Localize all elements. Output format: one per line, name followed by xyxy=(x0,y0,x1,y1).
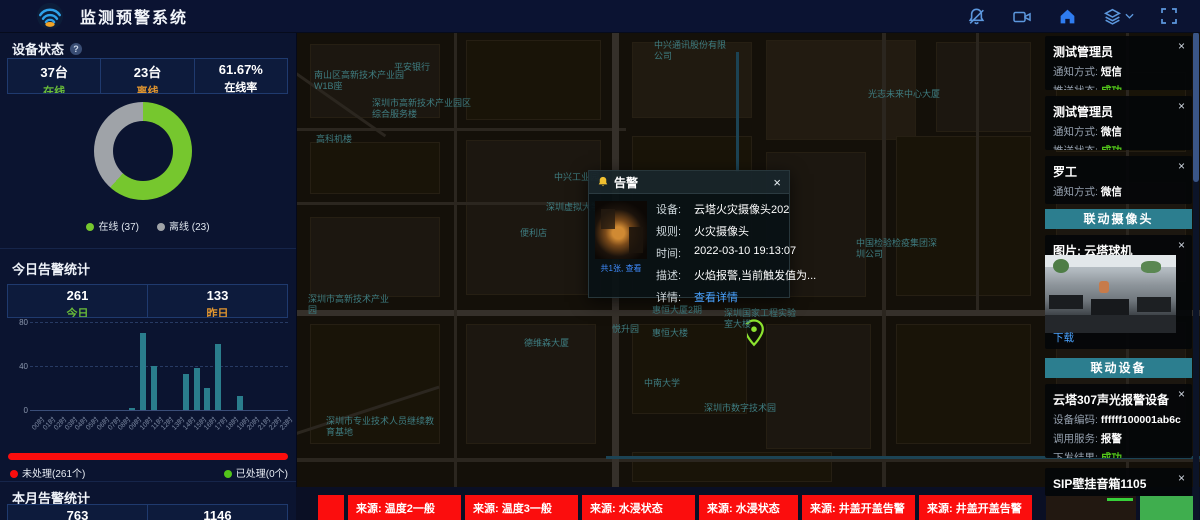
device-card-title: 云塔307声光报警设备 xyxy=(1053,391,1184,408)
device-row: 设备编码:ffffff100001ab6c xyxy=(1053,412,1184,427)
map-block xyxy=(466,40,601,120)
notification-row: 推送状态:成功 xyxy=(1053,203,1184,204)
photo-region xyxy=(1141,261,1161,273)
event-snapshot-thumbnail[interactable] xyxy=(1046,496,1136,520)
y-axis-tick: 40 xyxy=(4,362,28,371)
bar xyxy=(140,333,146,410)
alarm-popup-header: 告警 × xyxy=(589,171,789,194)
map-road xyxy=(976,32,979,310)
notification-row: 推送状态:成功 xyxy=(1053,143,1184,150)
bar xyxy=(151,366,157,410)
notification-row: 推送状态:成功 xyxy=(1053,83,1184,90)
left-stats-panel: 设备状态 ? 37台在线23台离线61.67%在线率 在线 (37)离线 (23… xyxy=(0,32,297,520)
field-label: 时间: xyxy=(656,245,688,261)
photo-region xyxy=(1091,299,1129,315)
close-icon[interactable]: × xyxy=(1178,239,1185,251)
map-label: 中南大学 xyxy=(644,378,699,389)
legend-label: 未处理(261个) xyxy=(22,469,85,480)
stat-cell: 61.67%在线率 xyxy=(194,59,287,93)
osd-text-strip xyxy=(1107,498,1133,501)
legend-label: 已处理(0个) xyxy=(236,469,288,480)
field-value: 云塔火灾摄像头202 xyxy=(694,201,789,217)
map-block xyxy=(466,140,601,295)
alert-source-block[interactable]: 来源: 井盖开盖告警 xyxy=(919,495,1032,520)
stat-cell: 261今日 xyxy=(8,285,147,317)
map-label: 中国检验检疫集团深圳公司 xyxy=(856,238,944,260)
notification-row: 通知方式:微信 xyxy=(1053,124,1184,139)
map-label: 深圳市专业技术人员继续教育基地 xyxy=(326,416,438,438)
legend-item: 离线 (23) xyxy=(157,218,210,233)
stat-cell: 133昨日 xyxy=(147,285,287,317)
map-block xyxy=(896,324,1031,444)
photo-region xyxy=(1099,281,1109,293)
map-label: 便利店 xyxy=(520,228,568,239)
field-label: 描述: xyxy=(656,267,688,283)
row-value: 微信 xyxy=(1101,186,1122,198)
y-axis-tick: 0 xyxy=(4,406,28,415)
device-row: 调用服务:报警 xyxy=(1053,431,1184,446)
layers-icon[interactable] xyxy=(1103,7,1134,26)
stat-value: 37台 xyxy=(8,62,100,81)
legend-dot xyxy=(10,470,18,478)
notification-name: 罗工 xyxy=(1053,163,1184,180)
fullscreen-icon[interactable] xyxy=(1160,7,1178,25)
bar xyxy=(215,344,221,410)
alarm-popup: 告警 × 共1张, 查看 设备:云塔火灾摄像头202规则:火灾摄像头时间:202… xyxy=(588,170,790,298)
alert-source-block[interactable]: 来源: 温度2一般 xyxy=(348,495,461,520)
y-axis-tick: 80 xyxy=(4,318,28,327)
map-road xyxy=(296,128,626,131)
stat-cell: 23台离线 xyxy=(100,59,193,93)
field-value: 2022-03-10 19:13:07 xyxy=(694,245,796,261)
legend-item: 在线 (37) xyxy=(86,218,139,233)
processed-legend: 未处理(261个)已处理(0个) xyxy=(10,465,288,480)
map-label: 深圳市高新技术产业园 xyxy=(308,294,393,316)
alarm-field-row: 时间:2022-03-10 19:13:07 xyxy=(656,245,816,261)
alert-source-block[interactable]: 来源: 水浸状态 xyxy=(699,495,798,520)
notification-row: 通知方式:微信 xyxy=(1053,184,1184,199)
stat-value: 261 xyxy=(8,288,147,303)
chevron-down-icon xyxy=(1125,13,1134,20)
x-axis-line xyxy=(30,410,288,411)
map-block xyxy=(310,142,440,194)
divider xyxy=(0,248,296,249)
field-value: 火焰报警,当前触发值为... xyxy=(694,267,816,283)
alarm-snapshot-image[interactable] xyxy=(595,201,647,259)
photo-region xyxy=(601,209,615,229)
map-label: 惠恒大楼 xyxy=(652,328,707,339)
stat-label: 在线 xyxy=(8,83,100,93)
stat-label: 在线率 xyxy=(195,79,287,93)
map-label: 南山区高新技术产业园W1B座 xyxy=(314,70,409,92)
bar xyxy=(204,388,210,410)
legend-label: 在线 (37) xyxy=(98,222,139,233)
device-row: 下发结果:成功 xyxy=(1053,450,1184,458)
legend-dot xyxy=(224,470,232,478)
stat-label: 离线 xyxy=(101,83,193,93)
right-notification-panel: 测试管理员×通知方式:短信推送状态:成功测试管理员×通知方式:微信推送状态:成功… xyxy=(1040,32,1200,520)
donut-hole xyxy=(113,121,173,181)
row-value: 报警 xyxy=(1101,433,1122,445)
map-label: 高科机楼 xyxy=(316,134,376,145)
today-alarm-stats: 261今日133昨日 xyxy=(7,284,288,318)
bar xyxy=(183,374,189,410)
map-road xyxy=(736,52,739,172)
divider xyxy=(0,481,296,482)
stat-value: 133 xyxy=(148,288,287,303)
alarm-field-row: 描述:火焰报警,当前触发值为... xyxy=(656,267,816,283)
stat-label: 昨日 xyxy=(148,305,287,317)
close-icon[interactable]: × xyxy=(1178,388,1185,400)
map-label: 中兴通讯股份有限公司 xyxy=(654,40,732,62)
stat-value: 1146 xyxy=(148,508,287,520)
bar xyxy=(194,368,200,410)
notification-name: 测试管理员 xyxy=(1053,43,1184,60)
alarm-field-row: 规则:火灾摄像头 xyxy=(656,223,816,239)
help-icon[interactable]: ? xyxy=(70,43,82,55)
linked-camera-header: 联动摄像头 xyxy=(1045,209,1192,229)
notification-name: 测试管理员 xyxy=(1053,103,1184,120)
close-icon[interactable]: × xyxy=(1178,40,1185,52)
alarm-snapshot-wrap: 共1张, 查看 xyxy=(595,201,647,311)
alarm-fields: 设备:云塔火灾摄像头202规则:火灾摄像头时间:2022-03-10 19:13… xyxy=(656,201,816,311)
legend-dot xyxy=(86,223,94,231)
scrollbar-thumb[interactable] xyxy=(1193,32,1199,182)
stat-label: 今日 xyxy=(8,305,147,317)
view-details-link[interactable]: 查看详情 xyxy=(694,289,738,305)
top-header: 监测预警系统 xyxy=(0,0,1200,33)
legend-label: 离线 (23) xyxy=(169,222,210,233)
map-label: 深圳市高新技术产业园区综合服务楼 xyxy=(372,98,477,120)
photo-region xyxy=(629,227,643,253)
legend-item: 未处理(261个) xyxy=(10,465,85,480)
map-block xyxy=(766,324,871,449)
bar xyxy=(129,408,135,410)
linked-device-card: SIP壁挂音箱1105×设备编码:1105 xyxy=(1045,468,1192,496)
notification-card: 测试管理员×通知方式:微信推送状态:成功 xyxy=(1045,96,1192,150)
alarm-field-row: 设备:云塔火灾摄像头202 xyxy=(656,201,816,217)
row-value: ffffff100001ab6c xyxy=(1101,414,1181,426)
alarm-field-row: 详情:查看详情 xyxy=(656,289,816,305)
stat-cell: 37台在线 xyxy=(8,59,100,93)
alert-source-block[interactable]: 来源: 水浸状态 xyxy=(582,495,695,520)
alert-source-block[interactable] xyxy=(318,495,344,520)
alert-source-block[interactable]: 来源: 温度3一般 xyxy=(465,495,578,520)
right-panel-scrollbar[interactable] xyxy=(1193,32,1199,520)
alarm-mute-icon[interactable] xyxy=(967,7,986,26)
close-icon[interactable]: × xyxy=(773,176,781,189)
alert-ticker-bar: 来源: 温度2一般来源: 温度3一般来源: 水浸状态来源: 水浸状态来源: 井盖… xyxy=(296,487,1040,520)
camera-snapshot-image[interactable] xyxy=(1045,255,1176,333)
camera-snapshot-card: 图片: 云塔球机 × 下载 xyxy=(1045,235,1192,349)
gridline xyxy=(30,366,288,367)
unprocessed-progress-bar xyxy=(8,453,288,460)
legend-item: 已处理(0个) xyxy=(224,465,288,480)
notification-card: 罗工×通知方式:微信推送状态:成功 xyxy=(1045,156,1192,204)
green-snapshot-thumbnail[interactable] xyxy=(1140,496,1196,520)
field-label: 规则: xyxy=(656,223,688,239)
photo-region xyxy=(1049,295,1083,309)
close-icon[interactable]: × xyxy=(1178,100,1185,112)
field-value: 火灾摄像头 xyxy=(694,223,749,239)
today-alarm-title: 今日告警统计 xyxy=(12,259,90,278)
field-label: 设备: xyxy=(656,201,688,217)
device-status-title: 设备状态 ? xyxy=(12,39,82,58)
photo-region xyxy=(1053,259,1069,273)
map-label: 悦升园 xyxy=(612,324,652,335)
month-alarm-stats: 7631146 xyxy=(7,504,288,520)
download-link[interactable]: 下载 xyxy=(1053,330,1074,345)
bar xyxy=(237,396,243,410)
page-title: 监测预警系统 xyxy=(80,4,188,28)
map-label: 光志未来中心大厦 xyxy=(868,89,978,100)
device-status-stats: 37台在线23台离线61.67%在线率 xyxy=(7,58,288,94)
close-icon[interactable]: × xyxy=(1178,160,1185,172)
stat-value: 61.67% xyxy=(195,62,287,77)
row-value: 成功 xyxy=(1101,85,1122,90)
notification-card: 测试管理员×通知方式:短信推送状态:成功 xyxy=(1045,36,1192,90)
home-icon[interactable] xyxy=(1058,7,1077,26)
map-label: 德维森大厦 xyxy=(524,338,594,349)
app-logo-icon xyxy=(36,2,64,30)
row-value: 成功 xyxy=(1101,145,1122,150)
legend-dot xyxy=(157,223,165,231)
row-value: 微信 xyxy=(1101,126,1122,138)
map-block xyxy=(936,42,1031,132)
stat-value: 763 xyxy=(8,508,147,520)
monitoring-dashboard: { "header": { "title": "监测预警系统" }, "left… xyxy=(0,0,1200,520)
row-value: 成功 xyxy=(1101,452,1122,458)
map-block xyxy=(896,136,1031,296)
map-label: 深圳市数字技术园 xyxy=(704,403,809,414)
row-value: 短信 xyxy=(1101,66,1122,78)
map-block xyxy=(310,217,440,297)
gridline xyxy=(30,322,288,323)
notification-row: 通知方式:短信 xyxy=(1053,64,1184,79)
linked-device-card: 云塔307声光报警设备×设备编码:ffffff100001ab6c调用服务:报警… xyxy=(1045,384,1192,458)
stat-cell: 763 xyxy=(8,505,147,520)
bell-icon xyxy=(597,176,609,188)
donut-legend: 在线 (37)离线 (23) xyxy=(0,218,296,233)
stat-value: 23台 xyxy=(101,62,193,81)
snapshot-caption[interactable]: 共1张, 查看 xyxy=(595,263,647,274)
device-card-title: SIP壁挂音箱1105 xyxy=(1053,475,1184,492)
photo-region xyxy=(1137,297,1171,312)
alarm-popup-body: 共1张, 查看 设备:云塔火灾摄像头202规则:火灾摄像头时间:2022-03-… xyxy=(589,194,789,315)
linked-device-header: 联动设备 xyxy=(1045,358,1192,378)
alert-source-block[interactable]: 来源: 井盖开盖告警 xyxy=(802,495,915,520)
field-label: 详情: xyxy=(656,289,688,305)
video-camera-icon[interactable] xyxy=(1012,7,1032,26)
alarm-popup-title: 告警 xyxy=(614,174,638,191)
close-icon[interactable]: × xyxy=(1178,472,1185,484)
stat-cell: 1146 xyxy=(147,505,287,520)
